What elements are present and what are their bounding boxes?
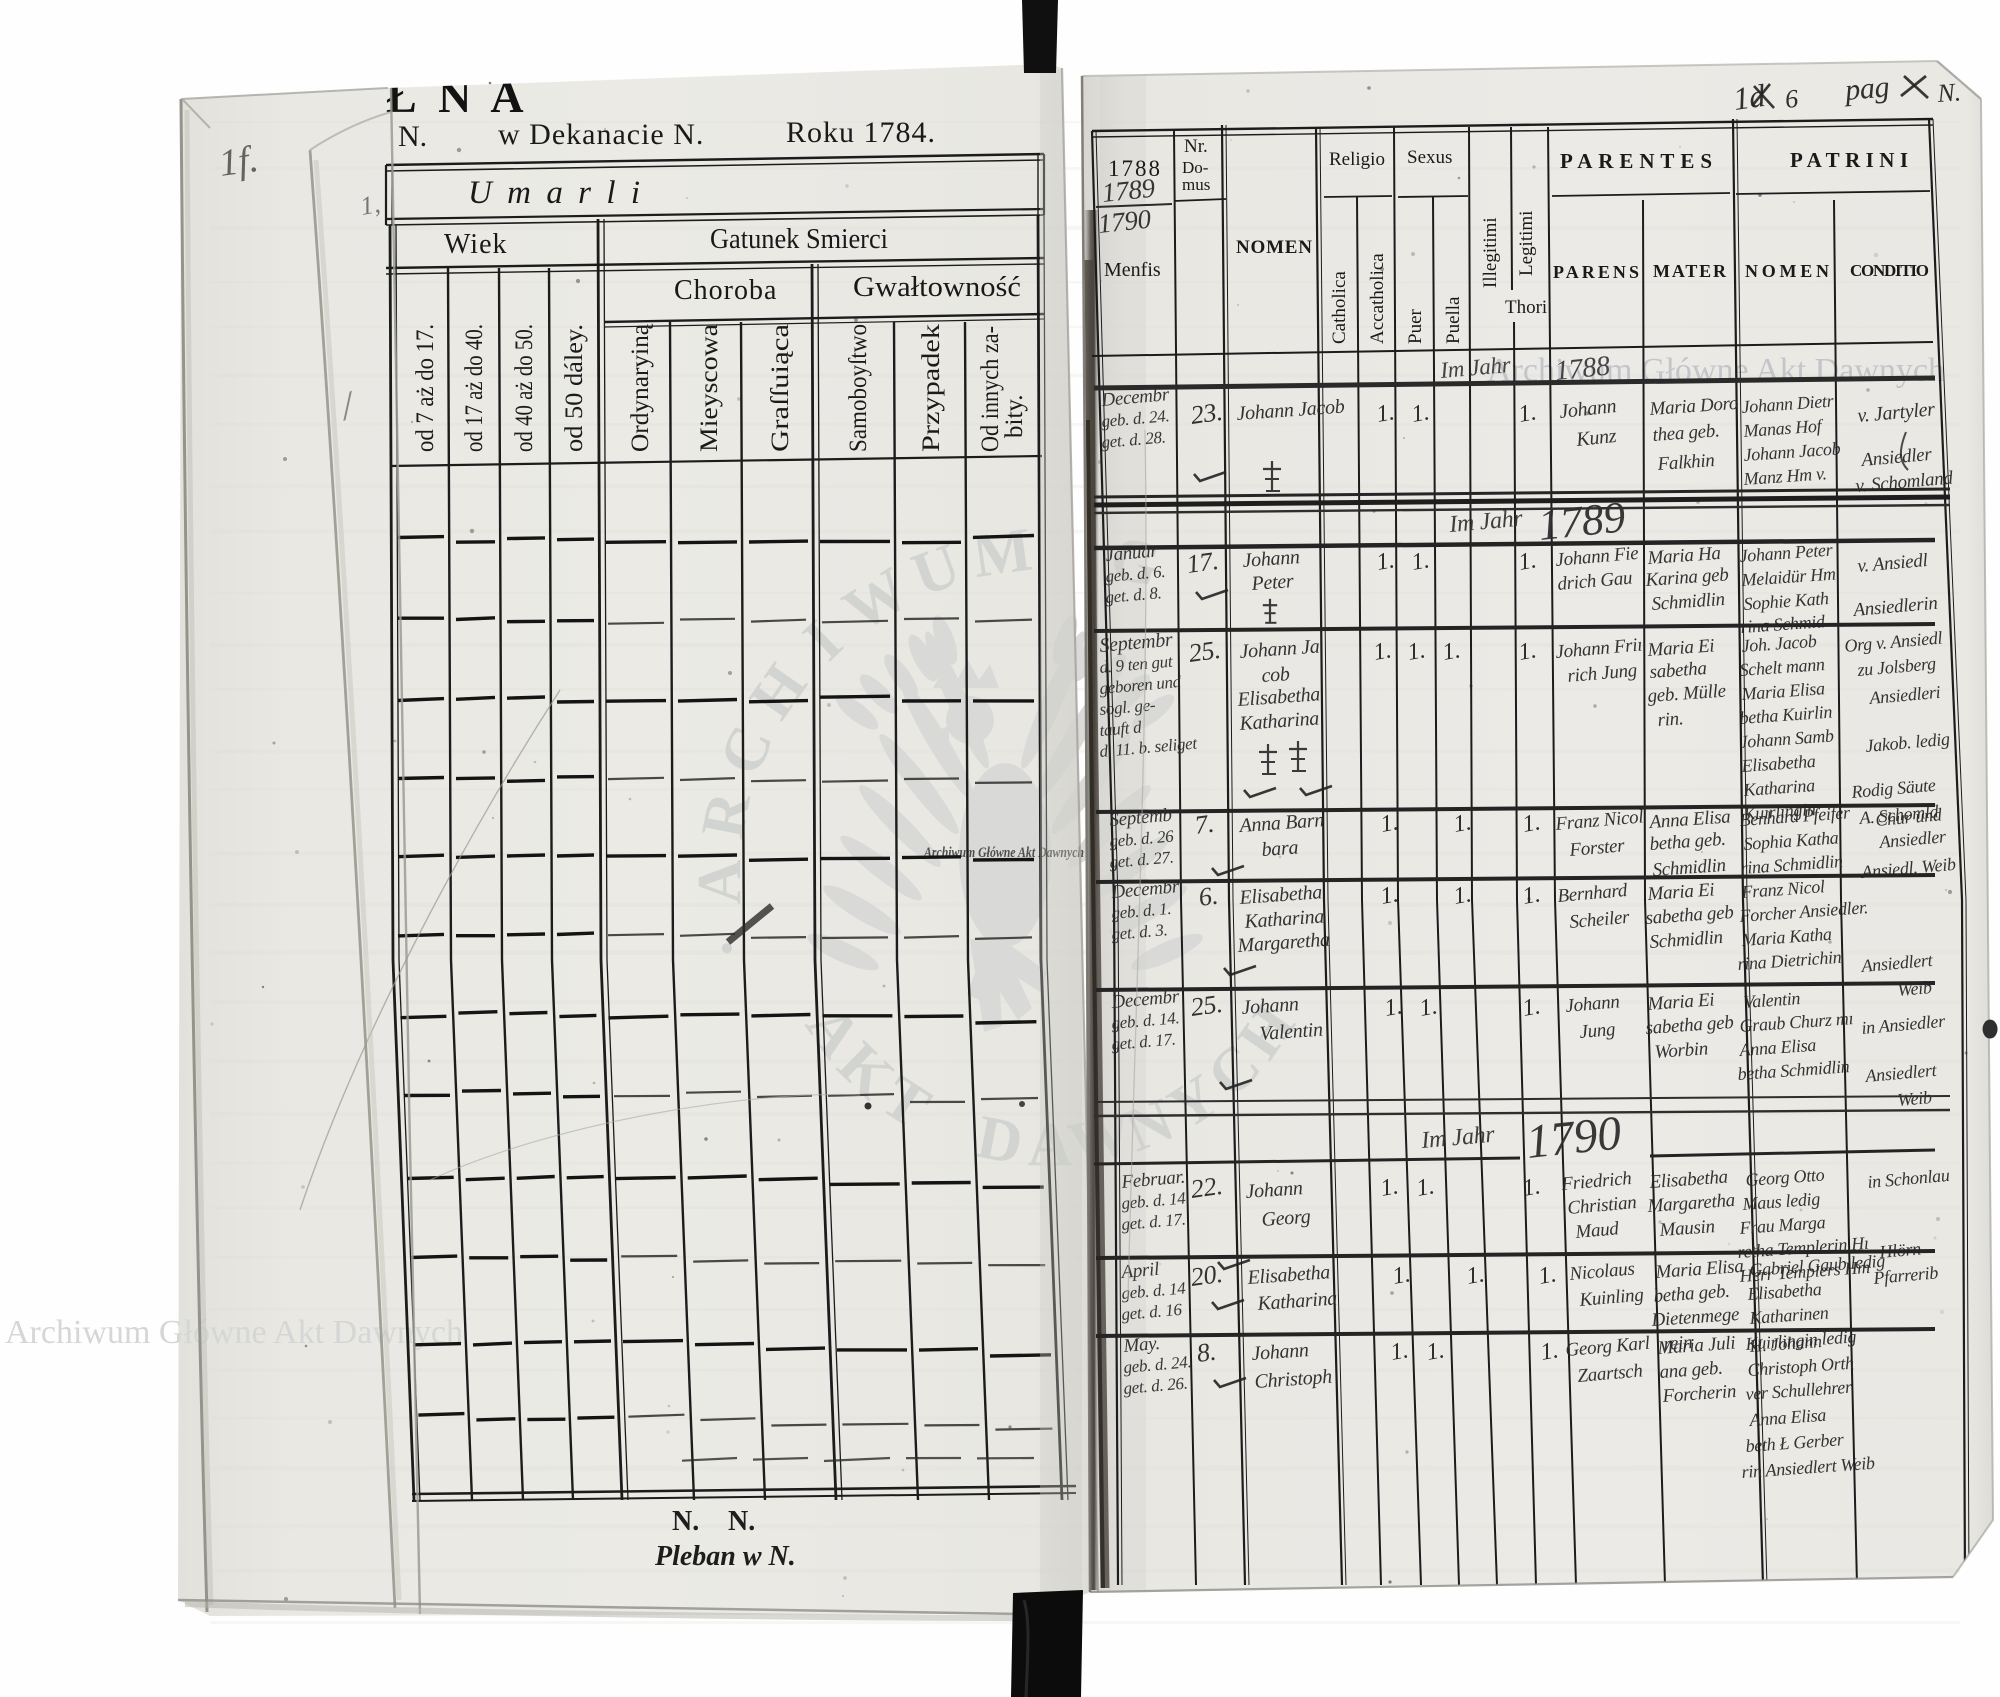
svg-text:pag: pag: [1842, 70, 1891, 107]
svg-text:7.: 7.: [1193, 809, 1216, 840]
svg-text:Roku 1784.: Roku 1784.: [786, 116, 936, 149]
svg-text:NOMEN: NOMEN: [1236, 237, 1312, 258]
svg-text:bity.: bity.: [1001, 394, 1028, 438]
svg-text:sabetha: sabetha: [1649, 658, 1707, 683]
svg-text:Catholica: Catholica: [1329, 271, 1350, 344]
svg-text:Menfis: Menfis: [1104, 259, 1161, 281]
svg-text:May.: May.: [1122, 1333, 1161, 1357]
svg-text:Kunz: Kunz: [1574, 425, 1618, 451]
svg-text:od 50 dáley.: od 50 dáley.: [561, 324, 588, 452]
svg-text:Samoboyſtwo: Samoboyſtwo: [845, 324, 872, 452]
svg-text:Puella: Puella: [1443, 296, 1464, 344]
svg-text:od 17 aż do 40.: od 17 aż do 40.: [461, 324, 488, 452]
svg-text:22.: 22.: [1189, 1171, 1224, 1204]
svg-text:Przypadek: Przypadek: [918, 323, 945, 452]
svg-text:mus: mus: [1182, 175, 1210, 194]
svg-text:20.: 20.: [1189, 1259, 1224, 1292]
svg-text:Choroba: Choroba: [674, 275, 777, 306]
svg-text:Pleban w N.: Pleban w N.: [654, 1541, 796, 1572]
svg-text:cob: cob: [1261, 663, 1291, 687]
svg-text:Weib: Weib: [1897, 1087, 1933, 1110]
svg-text:Graſſuiąca: Graſſuiąca: [767, 324, 794, 452]
svg-text:April: April: [1119, 1259, 1160, 1283]
svg-text:Gwałtowność: Gwałtowność: [853, 272, 1021, 303]
svg-text:Worbin: Worbin: [1654, 1038, 1709, 1063]
svg-text:Johann: Johann: [1242, 546, 1301, 572]
svg-text:Puer: Puer: [1405, 309, 1426, 345]
svg-text:N.: N.: [1935, 77, 1961, 108]
svg-text:M: M: [969, 515, 1036, 590]
svg-text:Wiek: Wiek: [444, 229, 508, 260]
svg-text:w Dekanacie N.: w Dekanacie N.: [498, 118, 704, 151]
svg-text:Ordynaryiną: Ordynaryiną: [627, 323, 654, 452]
svg-text:Gatunek Smierci: Gatunek Smierci: [710, 224, 888, 255]
svg-text:1789: 1789: [1100, 173, 1156, 208]
svg-text:Valentin: Valentin: [1259, 1019, 1324, 1045]
svg-text:25.: 25.: [1189, 989, 1224, 1022]
svg-text:Accatholica: Accatholica: [1367, 253, 1388, 344]
svg-text:Johann: Johann: [1251, 1339, 1310, 1365]
svg-text:6.: 6.: [1197, 881, 1220, 912]
svg-text:Mieyscowa: Mieyscowa: [696, 324, 723, 452]
svg-text:Od innych za-: Od innych za-: [977, 326, 1004, 452]
svg-text:Illegitimi: Illegitimi: [1480, 217, 1501, 288]
svg-text:1f.: 1f.: [216, 138, 261, 185]
svg-text:Nr.: Nr.: [1184, 136, 1208, 157]
svg-text:od 40 aż do 50.: od 40 aż do 50.: [511, 324, 538, 452]
svg-text:1790: 1790: [1524, 1106, 1624, 1169]
svg-text:Maud: Maud: [1574, 1218, 1621, 1243]
svg-text:rin.: rin.: [1657, 708, 1684, 731]
svg-text:Peter: Peter: [1250, 570, 1295, 595]
svg-text:tauft d: tauft d: [1099, 717, 1143, 740]
svg-text:od 7 aż do 17.: od 7 aż do 17.: [412, 324, 439, 452]
svg-text:23.: 23.: [1189, 397, 1224, 430]
svg-text:MATER: MATER: [1653, 261, 1727, 281]
svg-text:N.: N.: [672, 1506, 699, 1537]
svg-text:ana geb.: ana geb.: [1659, 1358, 1723, 1383]
svg-text:Mausin: Mausin: [1658, 1216, 1716, 1241]
svg-text:NOMEN: NOMEN: [1745, 261, 1829, 281]
svg-text:CONDITIO: CONDITIO: [1850, 261, 1929, 280]
svg-text:Johann: Johann: [1241, 993, 1300, 1019]
svg-text:Archiwum Główne Akt Dawnych: Archiwum Główne Akt Dawnych: [5, 1314, 463, 1351]
svg-text:8.: 8.: [1195, 1337, 1218, 1368]
svg-text:Jung: Jung: [1579, 1019, 1616, 1043]
svg-text:Legitimi: Legitimi: [1516, 211, 1537, 276]
svg-text:25.: 25.: [1187, 635, 1222, 668]
svg-text:Sexus: Sexus: [1407, 147, 1452, 168]
svg-text:Valentin: Valentin: [1743, 988, 1801, 1012]
svg-text:N.: N.: [398, 120, 427, 153]
svg-text:Thori: Thori: [1505, 297, 1547, 318]
svg-text:Georg: Georg: [1261, 1206, 1312, 1231]
svg-text:bara: bara: [1261, 836, 1299, 861]
svg-text:1790: 1790: [1096, 204, 1152, 239]
svg-text:Religio: Religio: [1329, 149, 1385, 170]
svg-text:Falkhin: Falkhin: [1656, 450, 1715, 475]
svg-text:N.: N.: [728, 1506, 755, 1537]
svg-text:Weib: Weib: [1897, 977, 1933, 1000]
svg-text:17.: 17.: [1185, 546, 1220, 579]
svg-text:PATRINI: PATRINI: [1790, 148, 1908, 172]
svg-text:Johann: Johann: [1245, 1177, 1304, 1203]
